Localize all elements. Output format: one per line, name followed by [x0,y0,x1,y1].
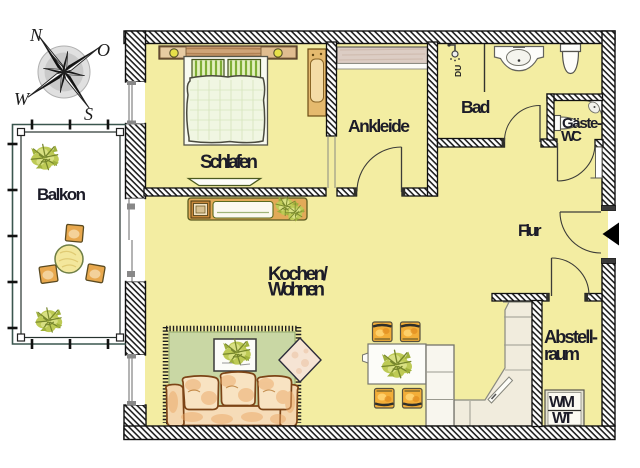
svg-text:Flur: Flur [518,222,542,240]
svg-text:N: N [29,25,43,45]
svg-text:S: S [84,104,93,124]
svg-text:WC: WC [561,128,582,145]
svg-text:Wohnen: Wohnen [268,280,325,301]
svg-text:Ankleide: Ankleide [348,116,410,136]
svg-text:O: O [97,40,110,60]
svg-text:W: W [14,89,31,109]
svg-text:Schlafen: Schlafen [200,152,258,173]
svg-text:Bad: Bad [461,97,491,117]
svg-text:WT: WT [552,410,573,427]
svg-text:raum: raum [544,344,580,364]
svg-text:WM: WM [549,394,575,411]
svg-text:DU: DU [453,65,463,77]
svg-text:Balkon: Balkon [37,185,86,204]
